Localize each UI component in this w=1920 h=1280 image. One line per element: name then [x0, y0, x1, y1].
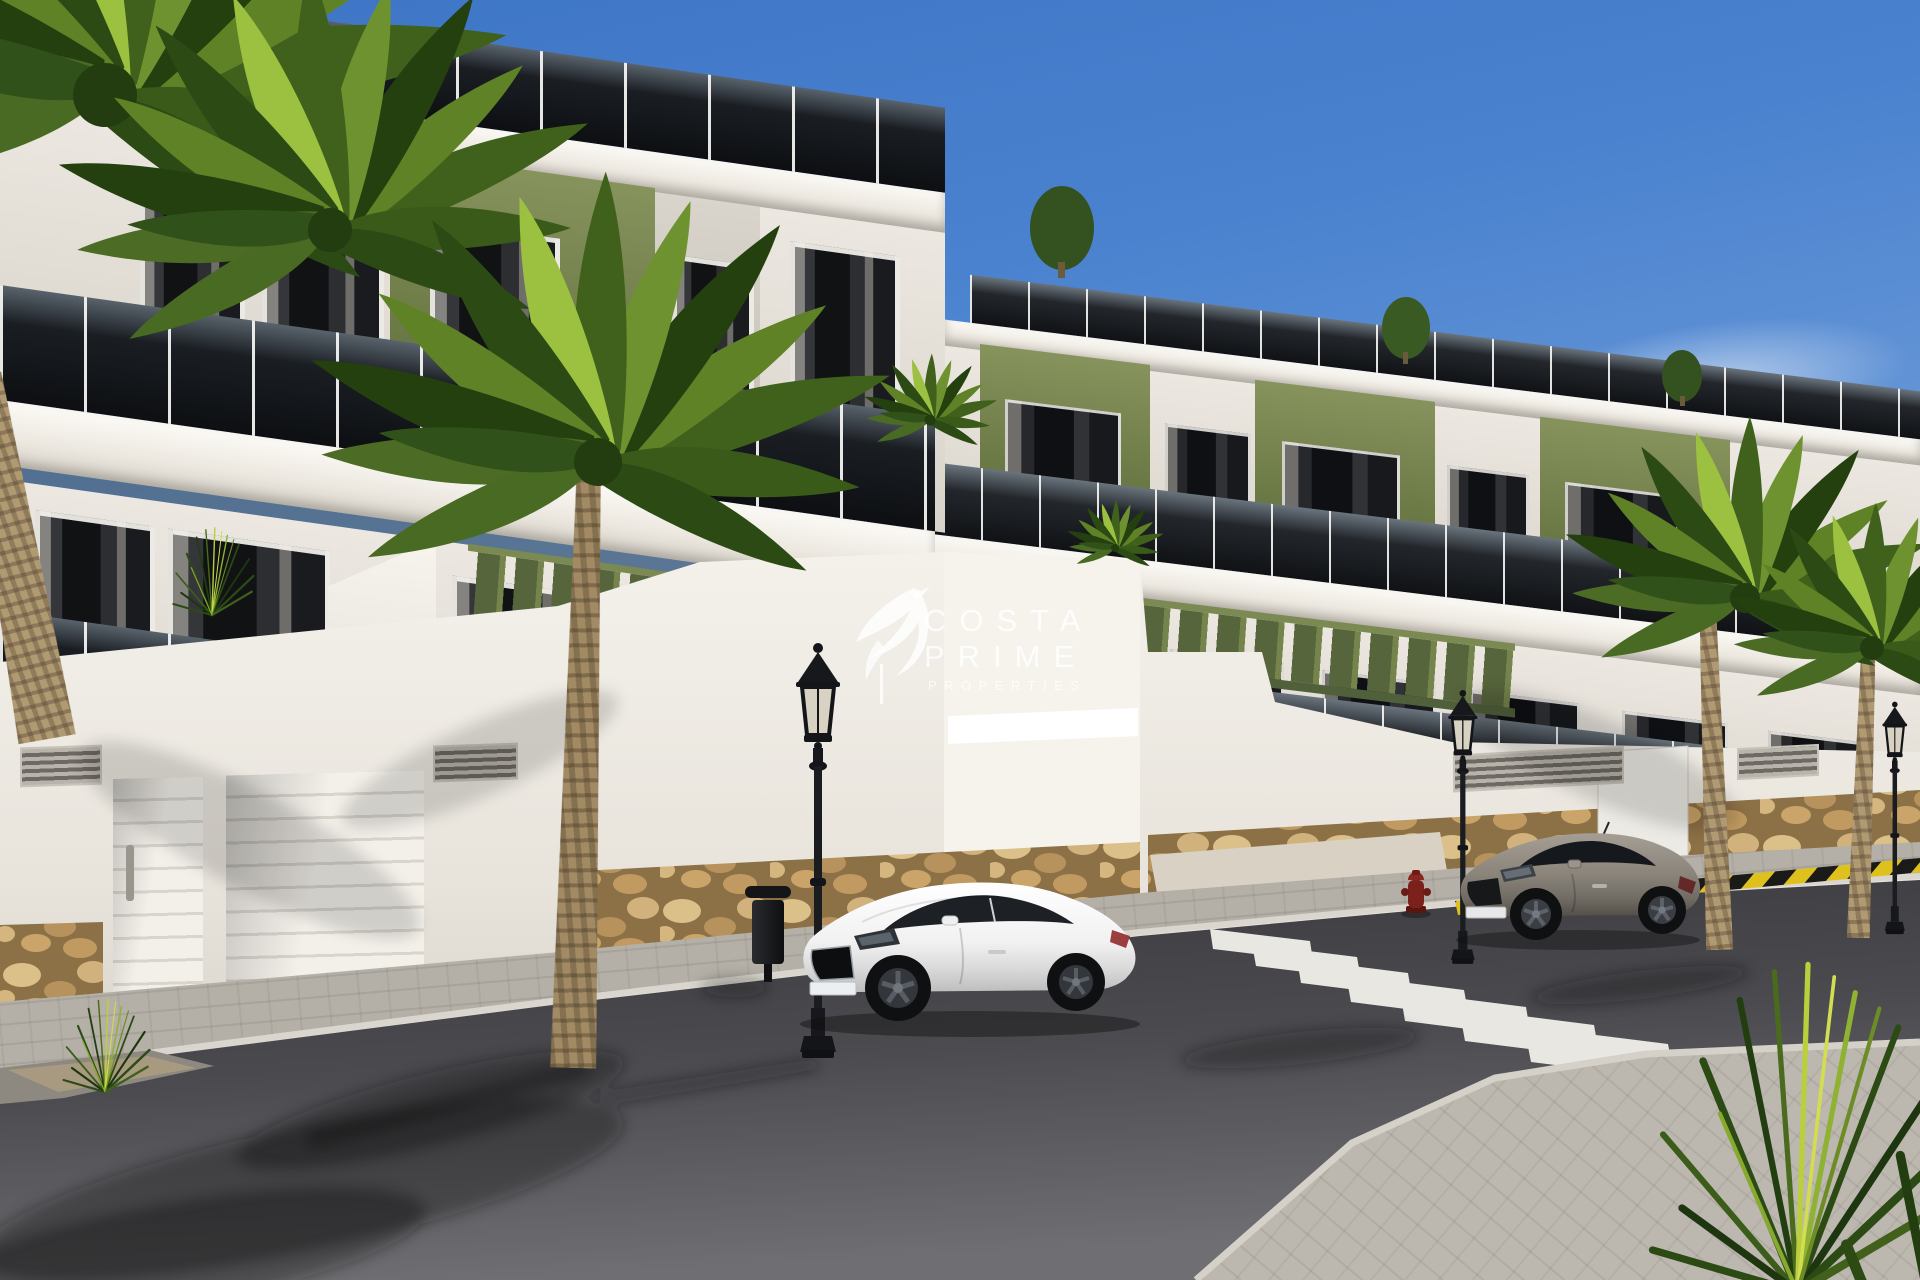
fire-hydrant [1398, 866, 1434, 918]
white-coupe-car [792, 858, 1148, 1044]
trash-bin [744, 886, 792, 982]
rooftop-tree [1662, 350, 1702, 406]
street-scene-render: COSTA PRIME PROPERTIES [0, 0, 1920, 1280]
terrace-plant [1067, 499, 1166, 573]
gray-coupe-car [1452, 812, 1704, 954]
rooftop-tree [1030, 186, 1094, 278]
terrace-plant [863, 353, 999, 454]
watermark: COSTA PRIME PROPERTIES [838, 578, 1138, 708]
watermark-line3: PROPERTIES [928, 679, 1087, 693]
front-wheel [1510, 888, 1562, 940]
terrace-agave [173, 528, 253, 615]
rooftop-tree [1382, 297, 1430, 364]
front-wheel [865, 955, 931, 1021]
watermark-line1: COSTA [924, 604, 1094, 637]
rear-wheel [1047, 953, 1105, 1011]
watermark-line2: PRIME [924, 640, 1087, 673]
hummingbird-icon [838, 582, 930, 706]
foreground-yucca-plant [1740, 1060, 1920, 1280]
planter-agave [64, 998, 150, 1092]
rear-wheel [1638, 886, 1686, 934]
street-lamp [1882, 702, 1907, 934]
